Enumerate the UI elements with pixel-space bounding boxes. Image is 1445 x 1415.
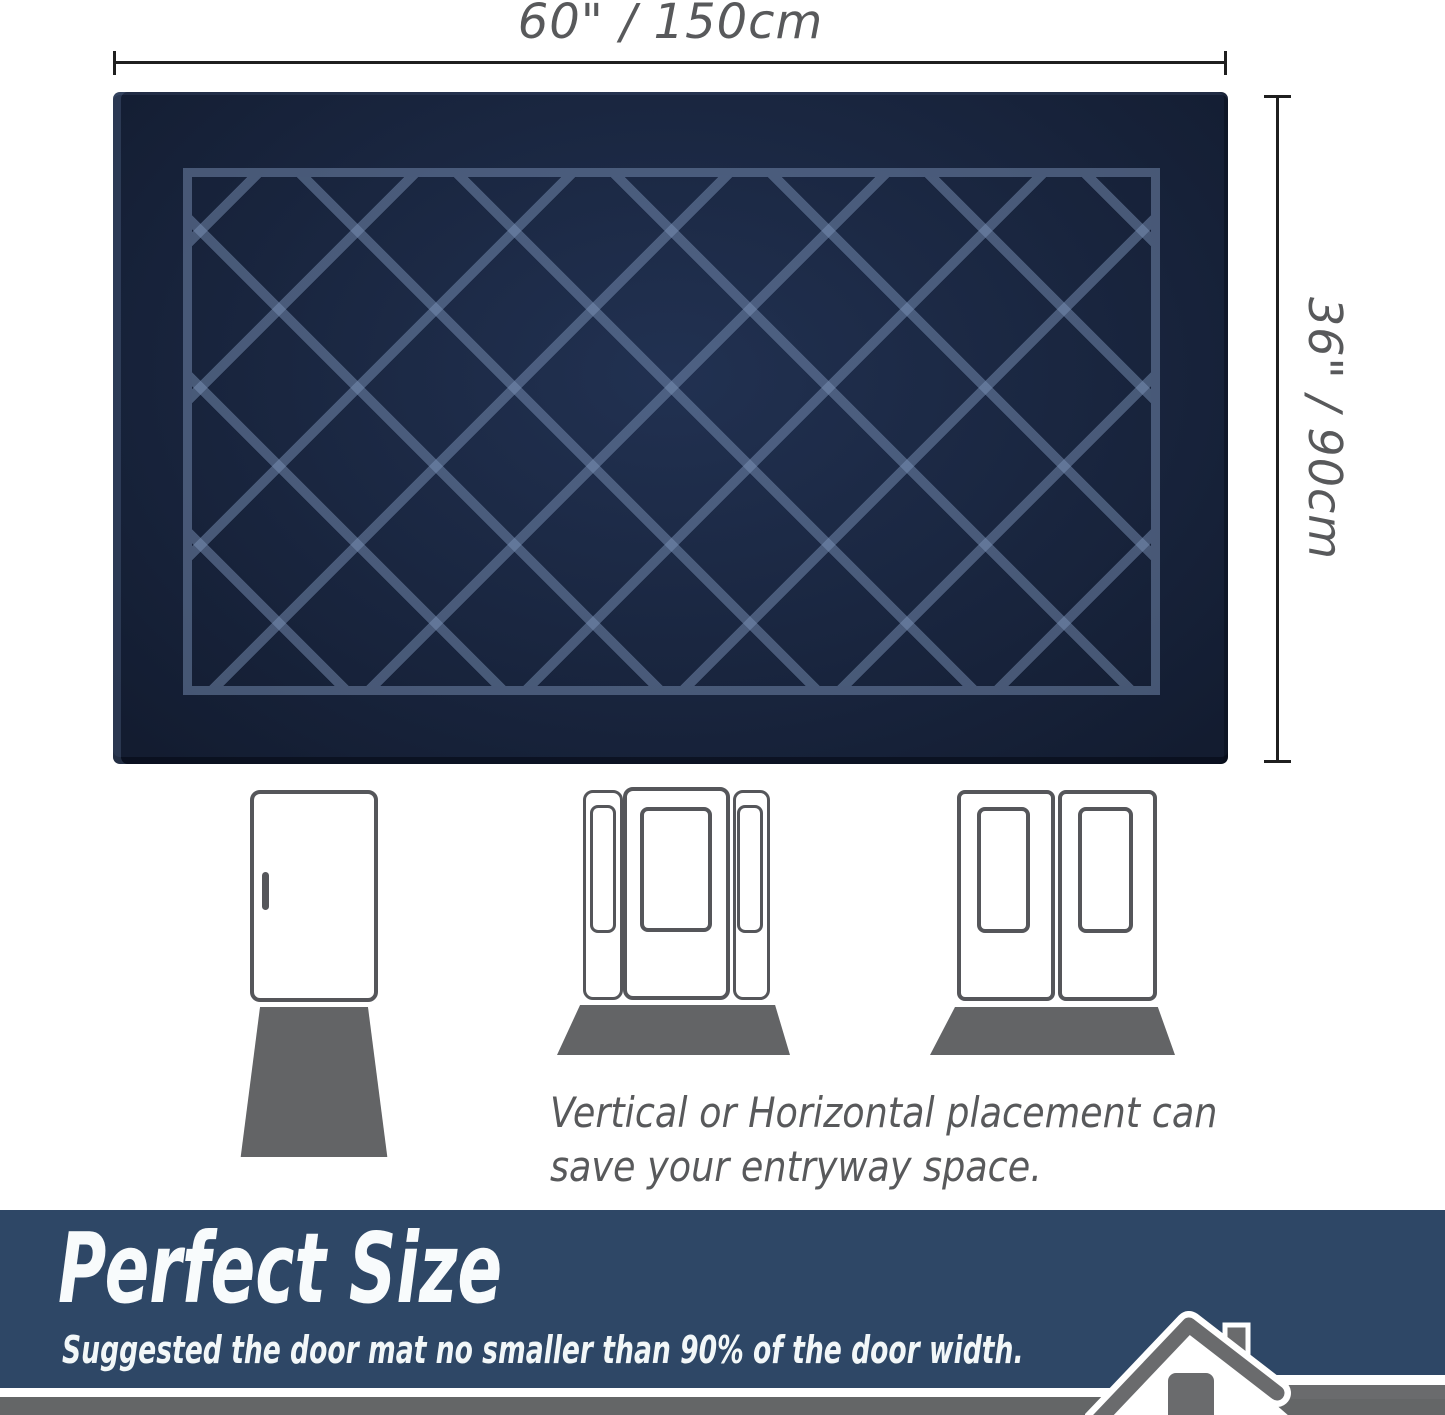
horizontal-mat-shape xyxy=(557,1005,790,1055)
door-panel xyxy=(250,790,378,1002)
placement-caption-line1: Vertical or Horizontal placement can xyxy=(550,1086,1217,1140)
sidelight-left-window xyxy=(590,805,616,933)
height-dimension-tick-bottom xyxy=(1264,760,1291,763)
placement-caption: Vertical or Horizontal placement can sav… xyxy=(550,1086,1217,1194)
width-dimension-line xyxy=(115,61,1226,64)
banner-subtitle: Suggested the door mat no smaller than 9… xyxy=(62,1328,1024,1372)
width-dimension-label: 60" / 150cm xyxy=(115,0,1226,50)
double-door-icon xyxy=(930,788,1175,1056)
width-dimension-tick-right xyxy=(1224,51,1227,75)
banner-title: Perfect Size xyxy=(58,1212,502,1325)
mat-inner-border xyxy=(183,168,1160,695)
door-leaf-left-window xyxy=(977,807,1030,933)
placement-caption-line2: save your entryway space. xyxy=(550,1140,1217,1194)
height-dimension-label: 36" / 90cm xyxy=(1298,95,1352,763)
horizontal-mat-shape xyxy=(930,1007,1175,1055)
single-door-icon xyxy=(236,788,396,1163)
house-icon xyxy=(1085,1295,1445,1415)
door-window xyxy=(640,807,712,932)
vertical-mat-shape xyxy=(236,1007,392,1157)
door-handle xyxy=(262,872,269,910)
height-dimension-tick-top xyxy=(1264,95,1291,98)
door-with-sidelights-icon xyxy=(557,786,790,1056)
product-infographic: 60" / 150cm 36" / 90cm Vertical or Horiz xyxy=(0,0,1445,1415)
door-leaf-right-window xyxy=(1078,807,1133,933)
door-mat-image xyxy=(113,92,1228,764)
height-dimension-line xyxy=(1276,95,1279,763)
sidelight-right-window xyxy=(737,805,763,933)
width-dimension-tick-left xyxy=(113,51,116,75)
